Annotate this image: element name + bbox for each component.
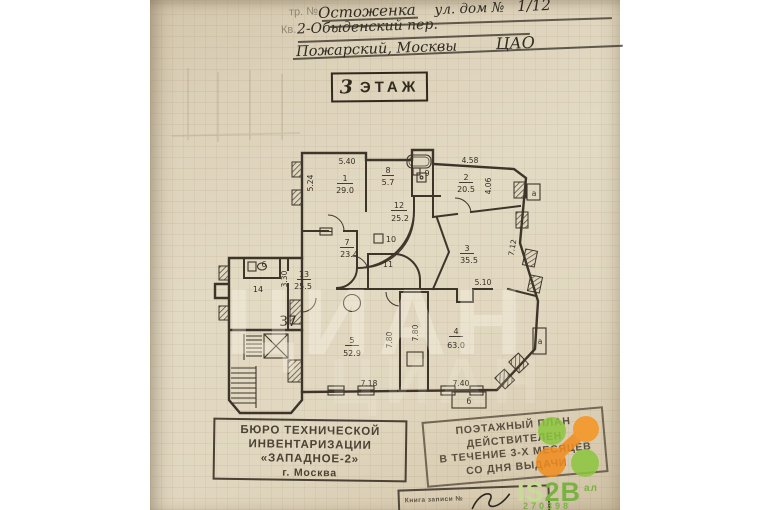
is2b-logo-icon: [515, 412, 625, 482]
room-12-area: 25.2: [391, 214, 409, 223]
dim-room2-height: 4.06: [484, 177, 493, 194]
apartment-number: 37: [279, 314, 297, 330]
room-4-number: 4: [453, 327, 458, 336]
bti-line-4: г. Москва: [215, 465, 405, 482]
dim-room1-width: 5.40: [339, 157, 356, 166]
dim-room1-height: 5.24: [306, 174, 315, 191]
room-5-number: 5: [349, 336, 354, 345]
room-6-number: 6: [261, 260, 266, 269]
balcony-mid-label: а: [538, 337, 543, 346]
room-5-area: 52.9: [343, 349, 361, 358]
bti-line-1: БЮРО ТЕХНИЧЕСКОЙ: [215, 423, 405, 440]
dim-room4-width: 7.40: [453, 379, 470, 388]
room-8-area: 5.7: [382, 178, 395, 187]
room-7-area: 23.4: [340, 250, 358, 259]
room-3-number: 3: [464, 244, 469, 253]
is2b-number: 270398: [523, 501, 571, 510]
room-1-area: 29.0: [336, 186, 354, 195]
dim-room3-width: 5.10: [475, 278, 492, 287]
room-3-area: 35.5: [460, 256, 478, 265]
room-1-number: 1: [342, 174, 347, 183]
room-9-number: 9: [424, 169, 429, 178]
staircase: [231, 334, 288, 408]
room-14-number: 14: [253, 285, 263, 294]
room-4-area: 63.0: [447, 341, 465, 350]
dim-room3-height: 7.12: [507, 238, 519, 256]
dim-room2-width: 4.58: [462, 156, 479, 165]
bleed-through-marks: [172, 68, 300, 142]
dim-room4-height: 7.80: [411, 324, 420, 341]
room-8-number: 8: [385, 166, 390, 175]
cistern: [248, 262, 256, 271]
balcony-top-label: а: [532, 189, 537, 198]
screenshot: тр. № Остоженка ул. дом № 1/12 Кв. 2-Обы…: [0, 0, 770, 510]
is2b-sup: ал: [584, 483, 598, 494]
bti-stamp: БЮРО ТЕХНИЧЕСКОЙ ИНВЕНТАРИЗАЦИИ «ЗАПАДНО…: [213, 418, 408, 483]
column: [344, 295, 361, 312]
duct: [374, 234, 383, 243]
porch-label: б: [467, 397, 472, 406]
dim-room5-height: 7.80: [385, 331, 394, 348]
room-13-area: 25.5: [294, 282, 312, 291]
shaft-box: [407, 352, 423, 366]
room-13-number: 13: [299, 270, 309, 279]
dim-room5-width: 7.18: [361, 379, 378, 388]
room-12-number: 12: [394, 201, 404, 210]
room-2-area: 20.5: [457, 185, 475, 194]
room-7-number: 7: [344, 238, 349, 247]
dim-room13-height: 3.30: [280, 270, 289, 287]
room-2-number: 2: [463, 173, 468, 182]
room-11-number: 11: [383, 260, 393, 269]
room-10-number: 10: [386, 235, 396, 244]
